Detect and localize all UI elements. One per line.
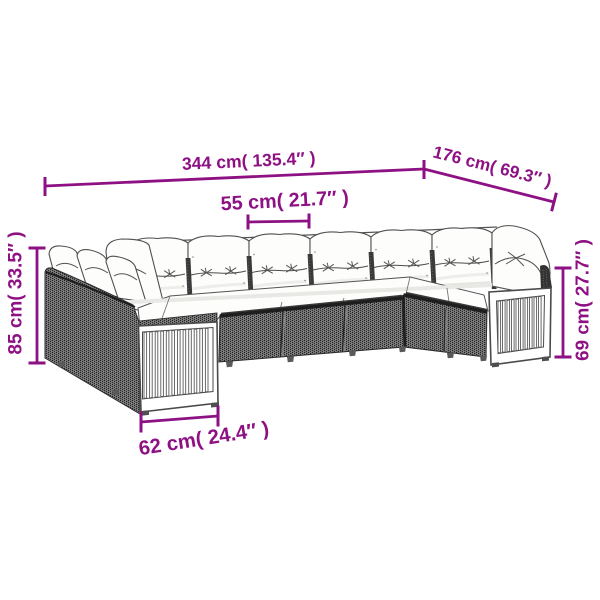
- svg-text:85 cm( 33.5″ ): 85 cm( 33.5″ ): [6, 231, 27, 354]
- svg-text:69 cm( 27.7″ ): 69 cm( 27.7″ ): [572, 239, 593, 361]
